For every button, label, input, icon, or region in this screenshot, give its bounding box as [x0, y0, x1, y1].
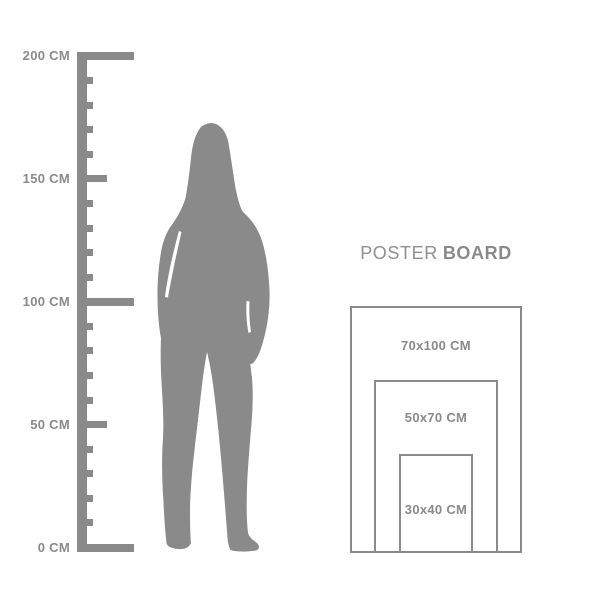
poster-board-title-regular: POSTER	[360, 243, 438, 263]
poster-board-title-bold: BOARD	[443, 243, 512, 263]
woman-silhouette-body	[158, 123, 270, 552]
poster-size-label: 30x40 CM	[366, 502, 506, 518]
poster-board-title: POSTERBOARD	[326, 243, 546, 265]
poster-size-label: 50x70 CM	[366, 410, 506, 426]
poster-size-label: 70x100 CM	[366, 338, 506, 354]
size-guide-canvas: 200 CM150 CM100 CM50 CM0 CM POSTERBOARD …	[0, 0, 600, 600]
